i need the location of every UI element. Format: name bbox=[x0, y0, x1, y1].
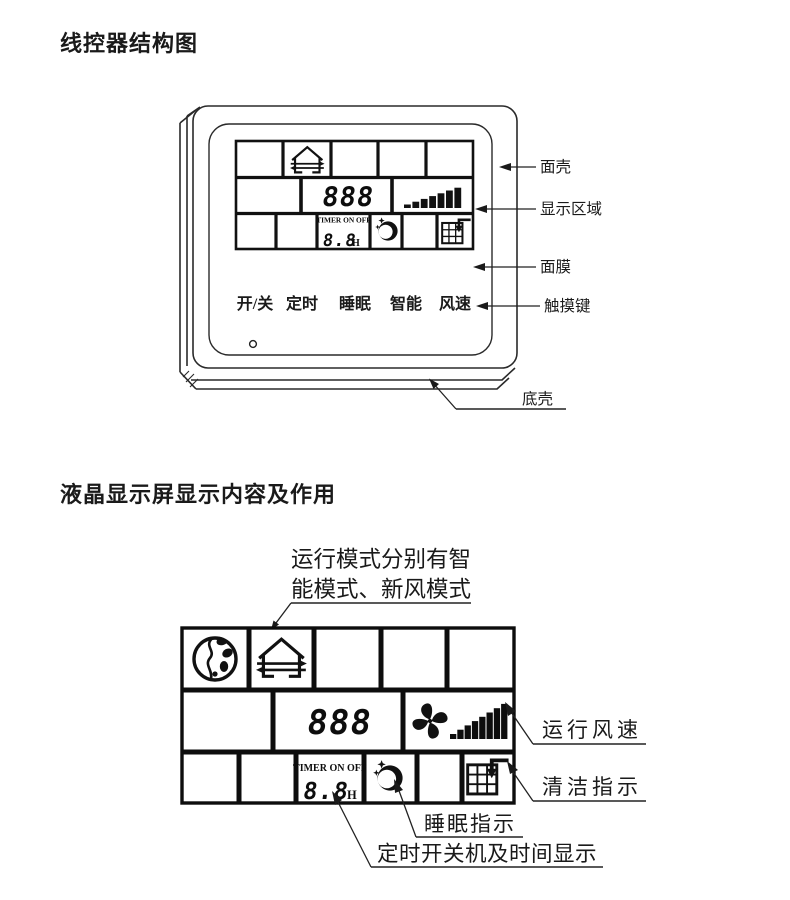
key-timer: 定时 bbox=[285, 294, 318, 313]
timer-display: 8.8 bbox=[301, 777, 350, 805]
power-indicator-dot bbox=[250, 341, 257, 348]
callout-fan-speed: 运行风速 bbox=[505, 702, 646, 744]
label-sleep: 睡眠指示 bbox=[424, 812, 516, 836]
label-face-film: 面膜 bbox=[540, 258, 571, 276]
label-touch-key: 触摸键 bbox=[544, 297, 591, 315]
key-fanspeed: 风速 bbox=[439, 295, 471, 313]
label-fan-speed: 运行风速 bbox=[542, 718, 642, 742]
left-side-edges bbox=[180, 116, 187, 372]
temp-display: 888 bbox=[320, 182, 376, 213]
lcd-content-diagram: 运行模式分别有智 能模式、新风模式 888 TIMER ON OFF 8.8 H bbox=[0, 460, 790, 900]
timer-unit: H bbox=[347, 788, 357, 802]
temp-display: 888 bbox=[305, 703, 375, 743]
bottom-shell-edge-1 bbox=[191, 368, 515, 380]
label-clean: 清洁指示 bbox=[542, 775, 642, 799]
timer-caption: TIMER ON OFF bbox=[293, 763, 367, 774]
callout-clean: 清洁指示 bbox=[507, 761, 646, 801]
label-display-area: 显示区域 bbox=[540, 200, 602, 218]
timer-unit: H bbox=[352, 238, 360, 249]
key-power: 开/关 bbox=[237, 294, 273, 313]
label-bottom-shell: 底壳 bbox=[522, 390, 553, 408]
callout-mode-note: 运行模式分别有智 能模式、新风模式 bbox=[271, 547, 471, 630]
mode-note-line1: 运行模式分别有智 bbox=[291, 547, 471, 572]
timer-caption: TIMER ON OFF bbox=[316, 216, 371, 225]
key-smart: 智能 bbox=[390, 294, 422, 313]
key-sleep: 睡眠 bbox=[339, 294, 371, 313]
label-timer: 定时开关机及时间显示 bbox=[377, 842, 597, 866]
chamfer-hatch bbox=[183, 371, 198, 387]
manual-page: 线控器结构图 液晶显示屏显示内容及作用 bbox=[0, 0, 790, 900]
callout-bottom-shell: 底壳 bbox=[429, 379, 566, 410]
mode-note-line2: 能模式、新风模式 bbox=[291, 577, 471, 602]
controller-structure-diagram: 888 TIMER ON OFF 8.8 H 开/关 定时 睡眠 智能 风速 面… bbox=[0, 0, 790, 460]
label-front-shell: 面壳 bbox=[540, 158, 571, 176]
